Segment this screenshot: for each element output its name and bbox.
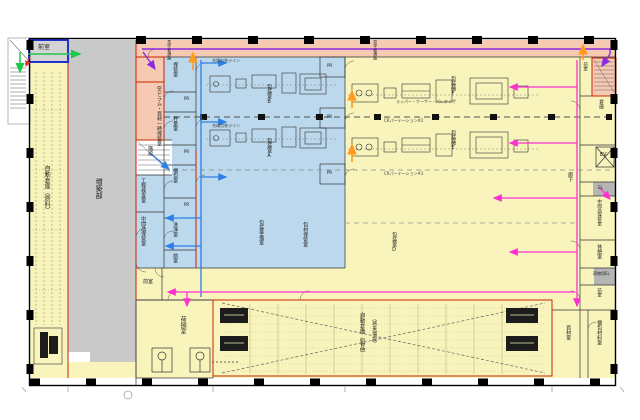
label-pr-4: PR [327, 64, 332, 68]
label-washing: 洗浄室 [172, 222, 177, 237]
label-palletizer-note: ラッパー・ケーサー・パレタイザ [396, 100, 456, 104]
label-anteroom-right: 前室 [596, 288, 601, 297]
label-pr-6: PR [327, 171, 332, 175]
label-raw-warehouse: 自動倉庫（原料） [43, 165, 49, 213]
label-corridor: 廊下 [567, 172, 572, 182]
label-packaging-b: 包装室B [266, 84, 271, 105]
floorplan-page: 前室 自動倉庫（原料） 増築部 見学者通路 見学者通路 空ドラム・資材一時保管室… [0, 0, 640, 420]
label-anteroom-b: 前室 [172, 253, 177, 263]
label-filler-f: 包装機F [450, 76, 455, 97]
label-packing-materials: 梱包材料室 [596, 320, 601, 345]
label-freight-el: 荷物用EL [593, 272, 610, 276]
label-material-storage: 包材保管室 [302, 222, 307, 247]
label-future-expansion: （将来増設） [371, 316, 376, 346]
label-intermediate-right: 中間品保管室 [596, 199, 601, 226]
label-packaging-a: 包装室A [266, 138, 271, 159]
label-pr-5: PR [327, 115, 332, 119]
label-packing: 梱包室 [172, 168, 177, 183]
label-warehouse-right: 倉庫 [598, 99, 603, 109]
label-annex: 増築部 [95, 178, 102, 199]
label-cr-partition-2: CRパーテーション#2 [384, 119, 423, 123]
label-cr-partition-3: CRパーテーション#3 [384, 172, 423, 176]
label-materials-room: 資材室 [565, 325, 570, 340]
label-intermediate-left: 中間品保管室 [140, 216, 145, 246]
label-anteroom-stair: 前室 [582, 62, 587, 71]
label-pr-1: PR [184, 97, 189, 101]
label-process-inspection: 工程検査室 [140, 178, 145, 203]
label-pr-2: PR [184, 150, 189, 154]
label-anteroom-topleft: 前室 [38, 45, 50, 51]
label-filler-e: 包装機E [450, 130, 455, 151]
label-stairs-left: 階段 [147, 146, 152, 156]
label-line-caption-1: 充填包装ライン [212, 59, 240, 63]
label-storage-b1: 保管室 [172, 62, 177, 77]
label-packaging-prep: 包装準備室 [258, 220, 263, 245]
label-el: EL [598, 186, 603, 190]
floorplan-drawing [0, 0, 640, 420]
label-visitor-corridor-1: 見学者通路 [167, 40, 171, 60]
label-shipping-room: 荷捌室 [179, 316, 185, 334]
label-elevator: EV [600, 153, 607, 158]
label-lounge: 休憩室 [596, 244, 601, 259]
label-weighing: 秤量室 [172, 116, 177, 131]
label-empty-drum: 空ドラム・資材一時保管室 [139, 86, 161, 138]
label-anteroom-bottom: 前室 [143, 280, 153, 285]
label-packaging-d: 包装室D [391, 232, 396, 253]
label-visitor-corridor-2: 見学者通路 [373, 40, 377, 60]
label-pr-3: PR [184, 203, 189, 207]
label-line-caption-2: 充填包装ライン [212, 124, 240, 128]
survey-marks [22, 387, 624, 399]
label-product-warehouse: 自動倉庫（製品） [358, 312, 364, 356]
zone-fills [8, 38, 616, 378]
